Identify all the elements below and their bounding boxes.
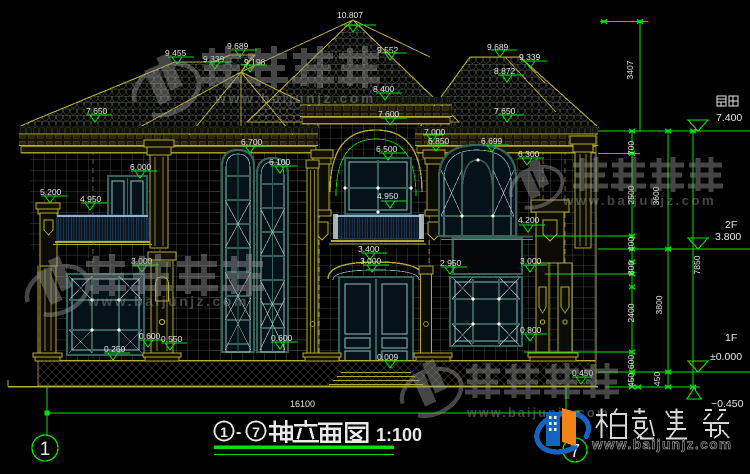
- svg-text:400: 400: [626, 237, 636, 251]
- svg-text:4.200: 4.200: [518, 215, 540, 225]
- svg-text:10.807: 10.807: [337, 10, 363, 20]
- svg-text:3800: 3800: [654, 295, 664, 314]
- svg-text:700: 700: [626, 141, 636, 155]
- svg-text:1: 1: [220, 424, 228, 440]
- svg-text:7850: 7850: [692, 255, 702, 274]
- svg-text:www.baijunjz.com: www.baijunjz.com: [87, 293, 249, 309]
- svg-text:3.800: 3.800: [715, 231, 741, 243]
- svg-text:2400: 2400: [626, 303, 636, 322]
- svg-text:800: 800: [626, 261, 636, 275]
- svg-text:www.baijunjz.com: www.baijunjz.com: [466, 406, 610, 420]
- svg-text:−0.450: −0.450: [711, 398, 744, 410]
- svg-text:7.400: 7.400: [716, 112, 742, 124]
- svg-text:3407: 3407: [625, 60, 635, 79]
- svg-text:450: 450: [626, 373, 636, 387]
- svg-text:www.baijunjz.com: www.baijunjz.com: [591, 437, 733, 452]
- svg-text:1:100: 1:100: [376, 425, 422, 445]
- svg-text:16100: 16100: [290, 399, 315, 409]
- svg-text:7: 7: [252, 424, 260, 440]
- svg-text:-: -: [236, 424, 241, 441]
- svg-text:www.baijunjz.com: www.baijunjz.com: [562, 193, 716, 208]
- svg-text:600: 600: [626, 355, 636, 369]
- svg-text:1F: 1F: [725, 332, 737, 344]
- svg-text:±0.000: ±0.000: [710, 351, 742, 363]
- svg-text:450: 450: [652, 372, 662, 386]
- svg-text:1: 1: [40, 439, 51, 460]
- svg-text:www.baijunjz.com: www.baijunjz.com: [214, 90, 376, 106]
- svg-text:2F: 2F: [725, 219, 737, 231]
- svg-text:4.950: 4.950: [377, 191, 399, 201]
